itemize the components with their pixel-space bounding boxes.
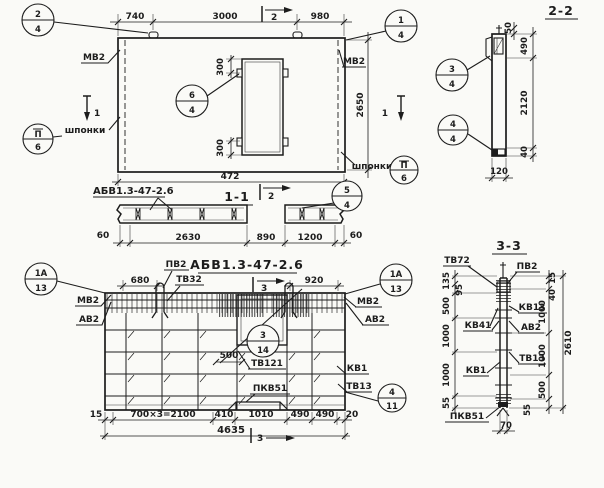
drawing-sheet: 740 3000 980 2 472 2650 300 300 1 [0,0,604,488]
dim-55-right: 55 [523,404,533,416]
label-pkv51: ПКВ51 [450,412,484,422]
callout-II6-left: П 6 [23,124,53,154]
section-marker-2-top: 2 [262,6,293,23]
callout-top: 2 [35,10,41,20]
arrowhead [276,278,285,284]
dim-740: 740 [126,12,145,22]
label-mv2-right: МВ2 [357,297,379,307]
dim-1010: 1010 [248,410,273,420]
projecting-bar [500,262,506,278]
dim-2630: 2630 [175,233,200,243]
callout-top: 3 [449,65,455,75]
top-embed-zone [496,280,511,302]
dim-1200: 1200 [297,233,322,243]
dim-135: 135 [442,272,452,290]
dense-mesh-right [272,294,310,317]
strip-keys [136,208,236,220]
strip-inner [123,208,244,220]
callout-bottom: 4 [449,80,455,90]
horizontal-bars [105,330,345,396]
label-av2: АВ2 [521,323,541,333]
label-kv13: КВ13 [519,303,546,313]
strip-inner [288,208,338,220]
label-kv1: КВ1 [466,366,486,376]
section-title: 2-2 [548,3,574,18]
callout-3-14: 3 14 [247,325,279,357]
dim-700x3: 700×3=2100 [130,410,195,420]
section-2-2: 2-2 490 2120 40 50 120 3 4 [436,3,578,182]
elevation-title: АБВ1.3-47-2.6 [190,257,304,272]
dim-472: 472 [221,172,240,182]
leader-shponki-right [341,152,355,165]
label-shponki-right: шпонки [352,162,393,172]
dim-980: 980 [311,12,330,22]
label-tv13: ТВ13 [519,354,545,364]
dim-50: 50 [504,22,514,34]
bottom-embed-fill [493,149,498,155]
dim-490b: 490 [316,410,335,420]
dim-490a: 490 [291,410,310,420]
section-1-1: АБВ1.3-47-2.6 1-1 2 60 2630 890 1200 60 [93,181,362,247]
callout-bottom: 13 [390,285,402,295]
dim-55-left: 55 [442,397,452,409]
label-tv13: ТВ13 [346,382,372,392]
opening-outline [242,59,283,155]
callout-leader [346,31,386,40]
callout-top: 1 [398,16,404,26]
label-tv32: ТВ32 [176,275,202,285]
callout-bottom: 4 [344,201,350,211]
embed-plate [283,138,288,146]
label-pkv51: ПКВ51 [253,384,287,394]
callout-bottom: 6 [401,174,407,184]
section-3-3: 3-3 135 95 500 1000 1000 55 15 40 1000 1… [442,238,574,434]
callout-3-4: 3 4 [436,56,490,91]
dim-60-right: 60 [350,231,363,241]
dim-3000: 3000 [212,12,237,22]
dim-1000-left-a: 1000 [442,324,452,348]
callout-5-4: 5 4 [302,181,362,211]
lifting-lug [149,32,158,38]
arrowhead [282,185,291,191]
label-tv121: ТВ121 [251,359,283,369]
dim-500: 500 [220,351,239,361]
dim-300-top: 300 [216,58,226,76]
label-av2-right: АВ2 [365,315,385,325]
section-title: 1-1 [224,189,250,204]
dim-15-right: 15 [548,272,558,284]
callout-bottom: 4 [35,25,41,35]
lifting-lug [293,32,302,38]
dim-680: 680 [131,276,150,286]
callout-top: 5 [344,186,350,196]
callout-bottom: 4 [189,106,195,116]
dim-120: 120 [490,167,508,177]
callout-top: 6 [189,91,195,101]
label-shponki-left: шпонки [65,126,106,136]
vertical-bars [126,313,312,410]
callout-leader [467,56,490,70]
callout-1-4: 1 4 [346,10,417,42]
callout-top: 4 [450,120,456,130]
callout-top: П [34,130,41,140]
marker-label: 3 [257,434,263,444]
dim-920: 920 [305,276,324,286]
callout-top: 1А [390,270,403,280]
callout-bottom: 4 [450,135,456,145]
arrowhead [398,112,404,121]
dim-70: 70 [500,421,512,431]
strip-keys [300,208,324,220]
label-mv2-left: МВ2 [77,296,99,306]
label-kv1: КВ1 [347,364,367,374]
marker-label: 1 [382,109,388,119]
dim-410: 410 [215,410,234,420]
label-tv72: ТВ72 [444,256,470,266]
arrowhead [84,112,90,121]
dim-60-left: 60 [97,231,110,241]
dim-20: 20 [346,410,359,420]
dim-40: 40 [520,146,530,158]
callout-top: 4 [389,388,395,398]
bar-hooks [128,331,320,404]
section-title: 3-3 [496,238,522,253]
arrowhead [284,7,293,13]
embed-plate [283,69,288,77]
label-pv2: ПВ2 [517,262,538,272]
dim-95: 95 [455,284,465,296]
callout-leader [57,281,105,293]
section-marker-3-top: 3 [253,277,285,294]
label-mv2-right: МВ2 [343,57,365,67]
callout-bottom: 14 [257,346,269,356]
bottom-embed [498,402,508,407]
dim-2650: 2650 [356,92,366,117]
callout-top: 3 [260,331,266,341]
dim-500-left: 500 [442,297,452,315]
label-av2-left: АВ2 [79,315,99,325]
callout-bottom: 13 [35,284,47,294]
dim-890: 890 [257,233,276,243]
callout-leader [54,22,148,33]
callout-bottom: 11 [386,402,398,412]
marker-label: 2 [268,192,274,202]
callout-top: 1А [35,269,48,279]
label-pv2: ПВ2 [166,260,187,270]
section-marker-2-mid: 2 [260,184,291,202]
callout-1a13-left: 1А 13 [25,263,105,295]
label-mv2-left: МВ2 [83,53,105,63]
marker-label: 1 [94,109,100,119]
section-marker-1-left: 1 [83,96,100,121]
elevation-view: АБВ1.3-47-2.6 3 14 [25,257,412,444]
marker-label: 2 [271,13,277,23]
callout-leader [345,392,378,401]
callout-4-4: 4 4 [438,115,492,150]
dim-4635: 4635 [217,425,245,436]
callout-6-4: 6 4 [176,74,239,117]
dim-500-right: 500 [538,381,548,399]
embed-plate [237,138,242,146]
dim-1000-left-b: 1000 [442,363,452,387]
opening-inner [245,62,280,152]
dim-15: 15 [90,410,103,420]
dim-490: 490 [520,37,530,55]
callout-bottom: 4 [398,31,404,41]
dim-40-right: 40 [548,289,558,301]
marker-label: 3 [261,284,267,294]
callout-II6-right: П 6 [390,156,418,184]
callout-leader [207,74,239,96]
section-marker-1-right: 1 [382,96,405,121]
dim-2120: 2120 [520,90,530,115]
callout-bottom: 6 [35,143,41,153]
top-embed-detail [494,38,503,54]
projecting-bar [496,25,502,34]
leader-pkv51 [246,394,290,402]
callout-leader [345,284,380,294]
dim-300-bot: 300 [216,139,226,157]
callout-leader [468,134,492,150]
panel-drawing: 740 3000 980 2 472 2650 300 300 1 [0,0,604,488]
callout-top: П [400,161,407,171]
plan-view: 740 3000 980 2 472 2650 300 300 1 [22,4,418,186]
callout-1a13-right: 1А 13 [345,264,412,296]
mark-label: АБВ1.3-47-2.6 [93,186,174,197]
leader-pv2 [507,272,540,284]
dim-2610: 2610 [564,330,574,355]
label-kv41: КВ41 [465,321,492,331]
